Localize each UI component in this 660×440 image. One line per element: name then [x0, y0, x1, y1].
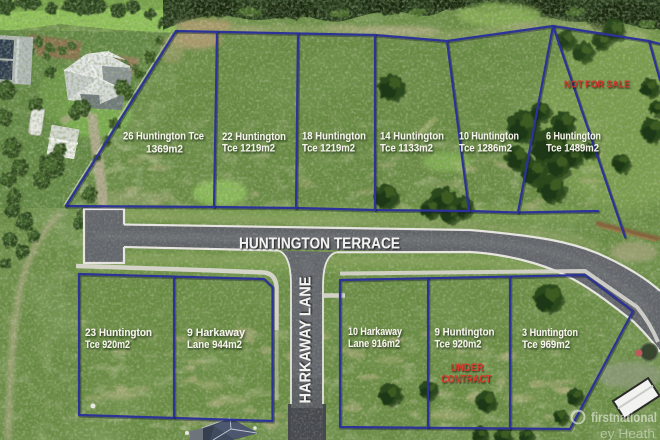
svg-text:9 Harkaway: 9 Harkaway	[187, 327, 246, 339]
svg-text:firstnational: firstnational	[591, 410, 657, 425]
svg-text:Lane 916m2: Lane 916m2	[348, 338, 400, 350]
svg-text:Tce 920m2: Tce 920m2	[85, 339, 130, 351]
svg-text:14 Huntington: 14 Huntington	[380, 131, 444, 143]
svg-text:23 Huntington: 23 Huntington	[85, 327, 152, 339]
svg-text:18 Huntington: 18 Huntington	[302, 131, 366, 143]
svg-text:Tce 920m2: Tce 920m2	[435, 339, 482, 351]
svg-text:10 Huntington: 10 Huntington	[459, 131, 519, 143]
svg-text:Tce 1489m2: Tce 1489m2	[546, 143, 599, 155]
svg-text:10 Harkaway: 10 Harkaway	[348, 326, 403, 338]
svg-text:Tce 1219m2: Tce 1219m2	[222, 143, 275, 155]
svg-text:Tce 969m2: Tce 969m2	[522, 339, 570, 351]
svg-text:NOT FOR SALE: NOT FOR SALE	[564, 79, 630, 91]
svg-text:9 Huntington: 9 Huntington	[435, 327, 495, 339]
svg-text:6 Huntington: 6 Huntington	[546, 131, 601, 143]
svg-text:3 Huntington: 3 Huntington	[522, 327, 578, 339]
svg-text:Lane 944m2: Lane 944m2	[187, 339, 242, 351]
svg-text:UNDER: UNDER	[451, 362, 484, 374]
svg-text:Tce 1133m2: Tce 1133m2	[380, 143, 433, 155]
svg-text:Tce 1286m2: Tce 1286m2	[459, 143, 512, 155]
svg-text:HARKAWAY LANE: HARKAWAY LANE	[298, 277, 315, 404]
svg-text:26 Huntington Tce: 26 Huntington Tce	[123, 131, 204, 143]
svg-text:Tce 1219m2: Tce 1219m2	[302, 143, 355, 155]
svg-text:22 Huntington: 22 Huntington	[222, 131, 286, 143]
svg-text:HUNTINGTON TERRACE: HUNTINGTON TERRACE	[239, 236, 400, 253]
svg-text:1369m2: 1369m2	[146, 144, 183, 156]
svg-text:CONTRACT: CONTRACT	[441, 374, 491, 386]
svg-text:ey Heath: ey Heath	[600, 427, 655, 440]
